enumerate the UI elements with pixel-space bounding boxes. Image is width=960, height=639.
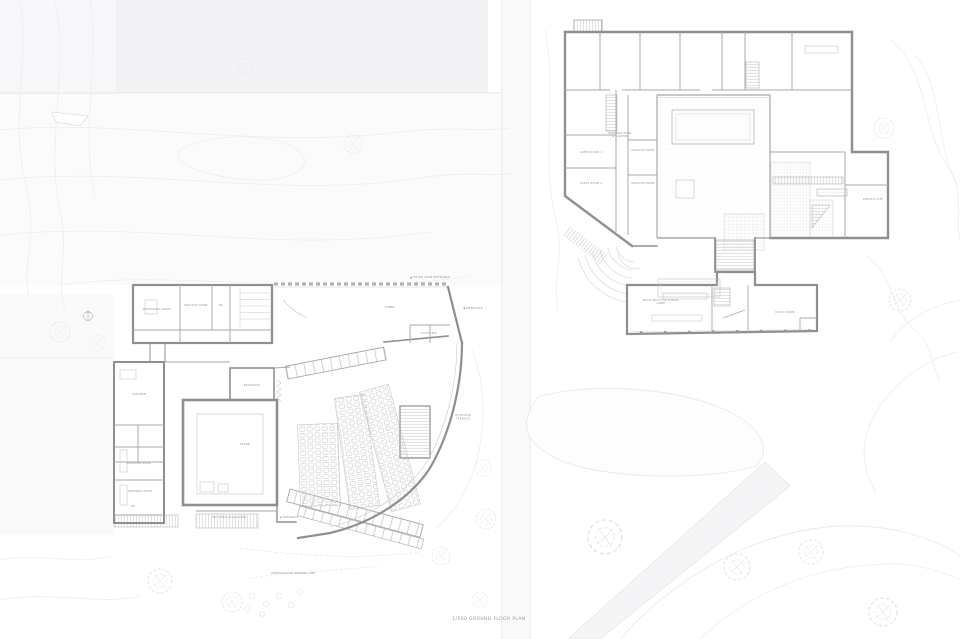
entrance-south-label: ◀ ENTRANCE: [280, 515, 299, 519]
music-plaza-label: THE MUSIC PLAZA PARK: [212, 515, 247, 519]
drawing-caption: 1/500 GROUND FLOOR PLAN: [452, 616, 525, 622]
guest-room-2-label: GUEST ROOM 2: [580, 181, 603, 185]
concert-hall-building: [114, 283, 462, 549]
floor-plan-canvas: REHEARSAL ROOMPRACTICE ROOMWCLOBBY▲ FOYE…: [0, 0, 960, 639]
outdoor-terrace-label: OUTDOORTERRACE: [455, 413, 471, 421]
music-school-building: [563, 20, 888, 334]
music-room-label: MUSIC ROOM: [775, 310, 794, 314]
underground-parking-label: UNDERGROUND PARKING LINE: [271, 571, 316, 575]
park-paths: [526, 300, 960, 639]
planter: [676, 180, 694, 198]
entrance-east-label: ◀ ENTRANCE: [463, 306, 483, 310]
backstage-label: BACKSTAGE: [244, 384, 261, 387]
wc-west-label: WC: [131, 505, 136, 508]
underground-parking-line: [240, 548, 420, 578]
practice-room-1-label: PRACTICE ROOM: [631, 149, 654, 152]
slope-stair-hatch: [563, 226, 609, 264]
guest-room-1-label: GUEST ROOM 1: [580, 150, 603, 154]
stage-label: STAGE: [240, 442, 250, 446]
ticket-box-label: TICKET BOX: [421, 332, 438, 335]
pool: [672, 110, 754, 144]
floor-plan-drawing: REHEARSAL ROOMPRACTICE ROOMWCLOBBY▲ FOYE…: [0, 0, 960, 639]
canteen-label: CANTEEN: [132, 392, 146, 396]
practice-room-2-label: PRACTICE ROOM: [631, 182, 654, 185]
wc-north-label: WC: [219, 304, 224, 307]
lobby-label: LOBBY: [385, 305, 395, 309]
practice-room-label: PRACTICE ROOM: [184, 304, 207, 307]
dressing-room-1-label: DRESSING ROOM: [127, 462, 151, 465]
rehearsal-room-label: REHEARSAL ROOM: [143, 307, 171, 311]
shrub-icons: [245, 590, 303, 617]
foyer-main-entrance-label: ▲ FOYER MAIN ENTRANCE: [410, 275, 450, 279]
dressing-room-2-label: DRESSING ROOM: [128, 490, 152, 493]
artists-cafe-label: ARTISTS CAFE: [863, 197, 884, 201]
courtyard: [658, 96, 769, 250]
